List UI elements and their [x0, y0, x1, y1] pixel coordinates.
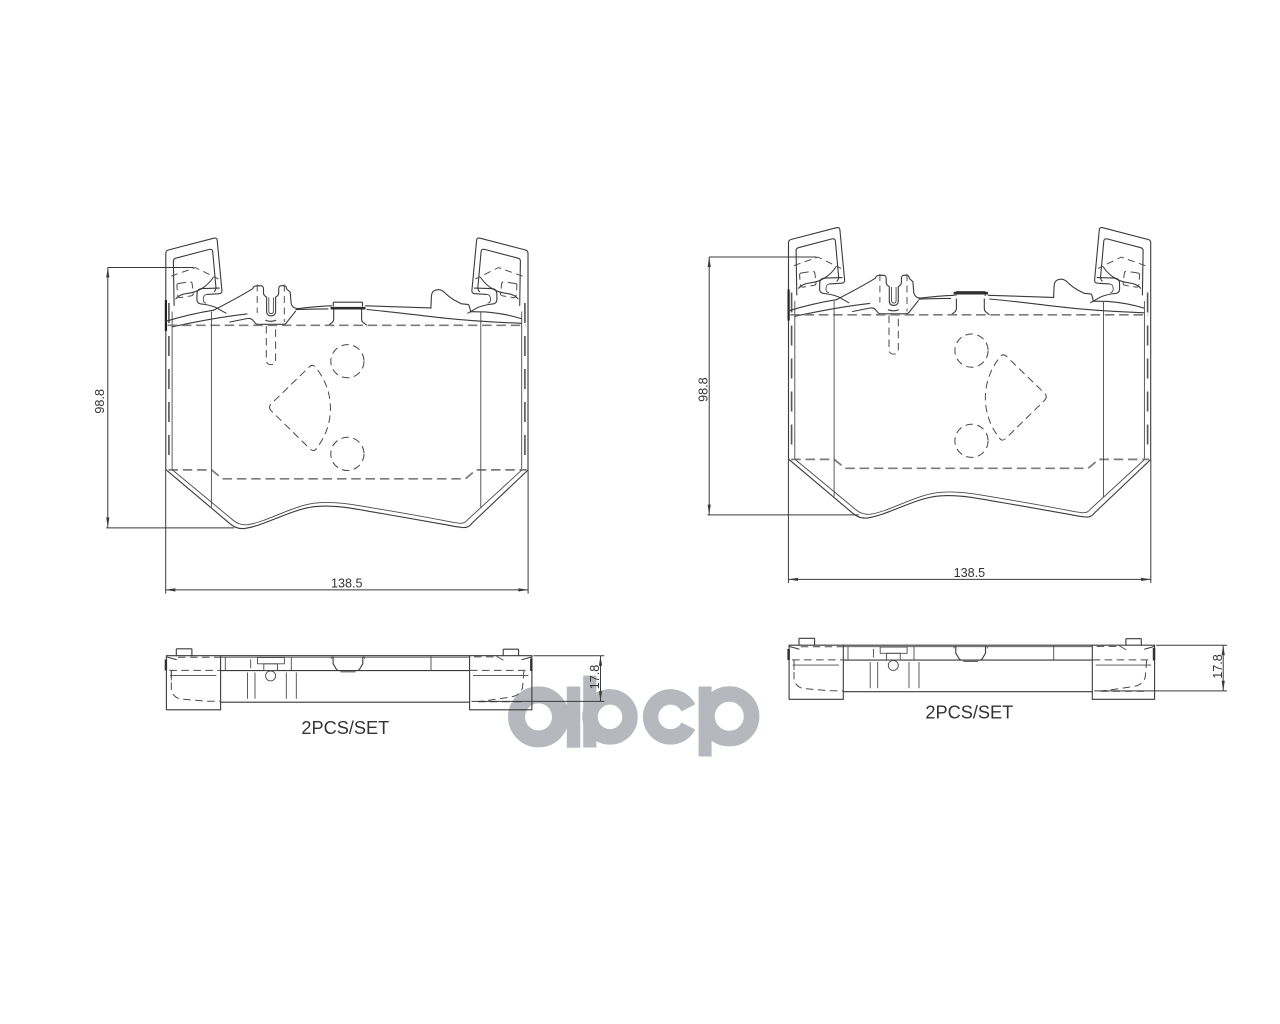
- svg-text:2PCS/SET: 2PCS/SET: [925, 703, 1013, 723]
- svg-text:2PCS/SET: 2PCS/SET: [301, 718, 389, 738]
- svg-text:98.8: 98.8: [697, 377, 711, 402]
- svg-text:98.8: 98.8: [93, 389, 107, 414]
